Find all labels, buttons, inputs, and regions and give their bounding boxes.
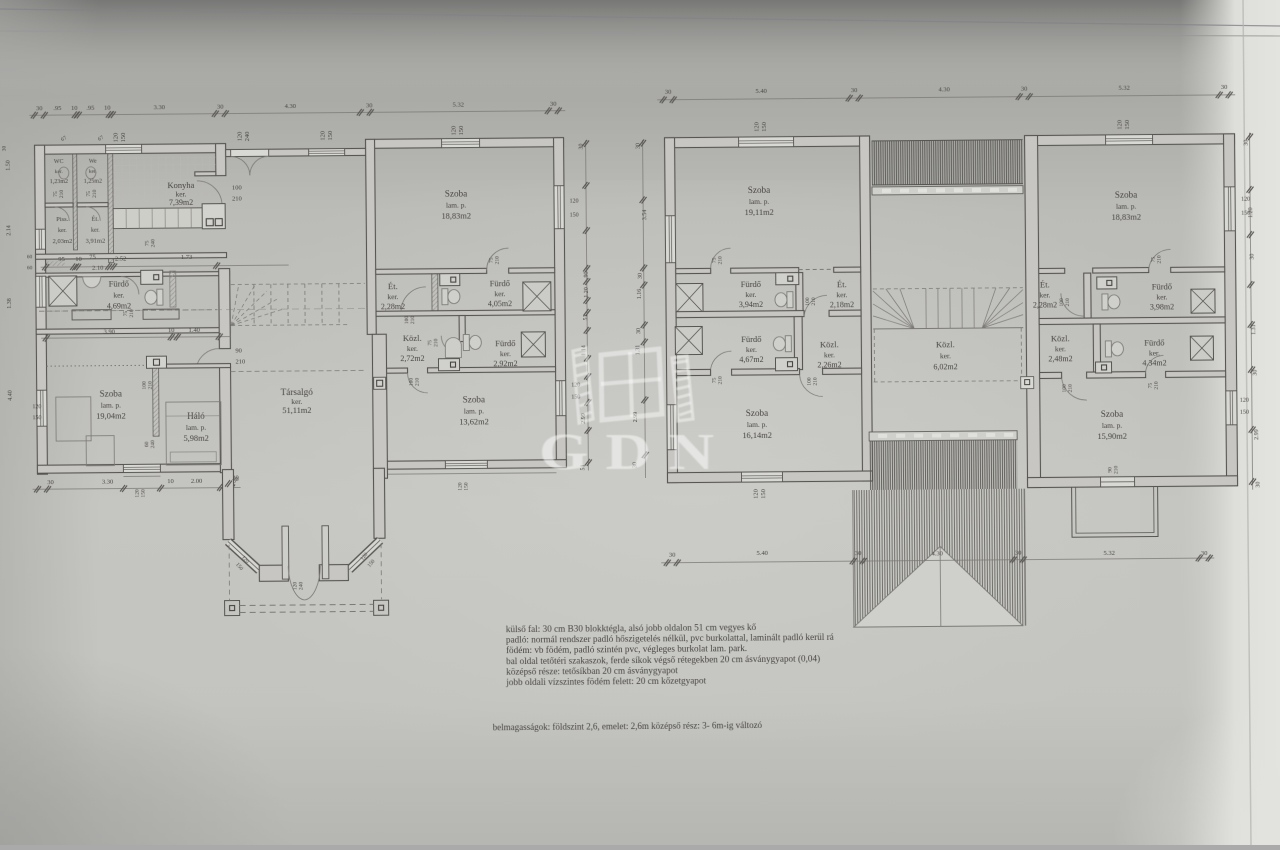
svg-text:lam. p.: lam. p.: [446, 201, 467, 210]
svg-text:2.14: 2.14: [6, 225, 12, 236]
svg-text:30: 30: [1244, 140, 1250, 146]
svg-text:3,91m2: 3,91m2: [86, 238, 106, 245]
svg-text:210: 210: [59, 190, 65, 199]
svg-text:Szoba: Szoba: [99, 389, 122, 399]
svg-text:120: 120: [32, 404, 41, 410]
svg-text:1.20: 1.20: [584, 287, 590, 298]
svg-text:Közl.: Közl.: [1051, 333, 1070, 343]
svg-text:210: 210: [235, 358, 245, 365]
svg-text:15,90m2: 15,90m2: [1097, 432, 1127, 441]
svg-text:240: 240: [298, 582, 304, 591]
svg-text:Fürdő: Fürdő: [1152, 281, 1172, 291]
svg-text:240: 240: [150, 239, 156, 248]
svg-text:150: 150: [761, 122, 768, 132]
svg-text:120: 120: [753, 122, 760, 132]
svg-text:10: 10: [71, 105, 78, 112]
svg-text:lam. p.: lam. p.: [1102, 421, 1123, 430]
svg-text:30: 30: [851, 87, 858, 94]
svg-text:120: 120: [570, 199, 579, 205]
svg-text:Piss.: Piss.: [56, 216, 69, 223]
svg-text:210: 210: [232, 195, 242, 202]
svg-text:60: 60: [27, 265, 33, 271]
svg-text:210: 210: [1154, 381, 1160, 390]
svg-text:150: 150: [327, 131, 334, 141]
svg-text:2,48m2: 2,48m2: [1048, 354, 1072, 363]
svg-text:30: 30: [1253, 370, 1259, 376]
svg-text:10: 10: [75, 256, 82, 263]
svg-text:ker.: ker.: [494, 289, 505, 298]
svg-text:10: 10: [167, 478, 174, 485]
svg-text:We: We: [89, 159, 97, 165]
svg-text:2,28m2: 2,28m2: [381, 302, 405, 311]
svg-text:ker.: ker.: [113, 290, 124, 299]
svg-text:Fürdő: Fürdő: [741, 334, 761, 344]
svg-text:30: 30: [1250, 254, 1256, 260]
svg-text:2,28m2: 2,28m2: [1033, 300, 1057, 309]
svg-text:120: 120: [1240, 398, 1249, 404]
svg-text:30: 30: [217, 104, 224, 111]
svg-text:30: 30: [366, 102, 373, 109]
svg-text:210: 210: [148, 381, 154, 390]
svg-text:51,11m2: 51,11m2: [282, 406, 311, 415]
svg-text:5.32: 5.32: [1103, 550, 1114, 557]
svg-text:3.30: 3.30: [102, 479, 113, 486]
svg-text:120: 120: [1241, 197, 1250, 203]
svg-text:2.99: 2.99: [1254, 429, 1260, 440]
svg-text:30: 30: [665, 89, 672, 96]
svg-text:Ét.: Ét.: [91, 215, 99, 223]
svg-text:120: 120: [753, 489, 760, 499]
svg-text:3.54: 3.54: [642, 210, 648, 221]
svg-text:2.52: 2.52: [115, 255, 126, 262]
svg-text:ker.: ker.: [500, 349, 511, 358]
svg-text:ker.: ker.: [89, 169, 98, 175]
svg-text:30: 30: [2, 146, 8, 152]
svg-text:210: 210: [495, 256, 501, 265]
svg-text:5.40: 5.40: [756, 550, 767, 557]
svg-text:ker.: ker.: [387, 292, 398, 301]
svg-text:16,14m2: 16,14m2: [742, 431, 772, 440]
svg-text:Fürdő: Fürdő: [495, 338, 515, 348]
svg-text:1.16: 1.16: [637, 289, 643, 300]
svg-text:4,34m2: 4,34m2: [1142, 358, 1166, 367]
svg-text:150: 150: [464, 482, 470, 491]
svg-text:Szoba: Szoba: [463, 394, 486, 404]
svg-text:30: 30: [636, 143, 642, 149]
svg-text:ker.: ker.: [824, 350, 835, 359]
svg-text:Szoba: Szoba: [748, 185, 771, 195]
svg-text:150: 150: [458, 126, 465, 136]
svg-text:Fürdő: Fürdő: [109, 278, 129, 288]
svg-text:150: 150: [32, 415, 41, 421]
svg-text:2,03m2: 2,03m2: [53, 238, 73, 245]
svg-text:18,83m2: 18,83m2: [441, 211, 471, 220]
svg-text:30: 30: [47, 479, 54, 486]
svg-text:4,67m2: 4,67m2: [739, 355, 763, 364]
svg-text:51: 51: [583, 314, 589, 320]
svg-text:30: 30: [636, 328, 642, 334]
svg-text:210: 210: [718, 376, 724, 385]
svg-text:30: 30: [1201, 550, 1208, 557]
svg-text:13,62m2: 13,62m2: [459, 417, 489, 426]
svg-text:ker.: ker.: [1039, 290, 1050, 299]
svg-text:ker.: ker.: [1055, 344, 1066, 353]
svg-text:210: 210: [1157, 255, 1163, 264]
svg-text:30: 30: [1221, 84, 1228, 91]
svg-text:4.40: 4.40: [8, 390, 14, 401]
svg-text:18,83m2: 18,83m2: [1111, 213, 1141, 222]
svg-text:210: 210: [410, 316, 416, 325]
svg-text:Szoba: Szoba: [445, 188, 468, 198]
svg-text:Szoba: Szoba: [746, 408, 769, 418]
svg-text:Fürdő: Fürdő: [741, 279, 761, 289]
svg-text:6,02m2: 6,02m2: [933, 362, 957, 371]
svg-text:30: 30: [1021, 86, 1028, 93]
svg-text:Ét.: Ét.: [837, 279, 847, 289]
svg-text:5.32: 5.32: [453, 102, 464, 109]
svg-text:90: 90: [235, 347, 242, 354]
svg-text:10: 10: [168, 327, 175, 334]
svg-text:jobb oldali vízszintes födém f: jobb oldali vízszintes födém felett: 20 …: [505, 675, 706, 687]
svg-text:30: 30: [638, 273, 644, 279]
svg-text:lam. p.: lam. p.: [186, 423, 207, 432]
svg-text:lam. p.: lam. p.: [749, 197, 770, 206]
svg-text:3,98m2: 3,98m2: [1150, 302, 1174, 311]
svg-text:150: 150: [1240, 410, 1249, 416]
svg-text:1.50: 1.50: [6, 160, 12, 171]
svg-text:150: 150: [760, 489, 767, 499]
svg-text:lam. p.: lam. p.: [464, 406, 485, 415]
svg-text:Közl.: Közl.: [820, 339, 839, 349]
svg-text:240: 240: [244, 132, 251, 142]
svg-text:Szoba: Szoba: [1101, 409, 1124, 419]
svg-text:210: 210: [1113, 465, 1119, 474]
svg-text:30: 30: [550, 101, 557, 108]
svg-text:1.31: 1.31: [1251, 324, 1257, 335]
svg-text:ker.: ker.: [745, 290, 756, 299]
svg-text:ker.: ker.: [836, 290, 847, 299]
svg-text:3.30: 3.30: [154, 104, 165, 111]
svg-text:5.32: 5.32: [1118, 85, 1129, 92]
svg-text:2,18m2: 2,18m2: [830, 300, 854, 309]
svg-text:7,39m2: 7,39m2: [169, 198, 193, 207]
svg-text:240: 240: [150, 440, 156, 449]
svg-text:19,11m2: 19,11m2: [745, 208, 774, 217]
svg-text:1.73: 1.73: [181, 254, 192, 261]
svg-text:150: 150: [1124, 120, 1131, 130]
svg-text:150: 150: [120, 133, 127, 143]
svg-text:30: 30: [855, 550, 862, 557]
svg-text:5,98m2: 5,98m2: [183, 434, 208, 443]
svg-text:120: 120: [450, 126, 457, 136]
svg-text:1.38: 1.38: [7, 298, 13, 309]
svg-text:3,94m2: 3,94m2: [739, 300, 763, 309]
svg-text:210: 210: [1068, 384, 1074, 393]
svg-text:3.90: 3.90: [103, 329, 114, 336]
svg-text:4.30: 4.30: [285, 103, 296, 110]
svg-text:60: 60: [27, 254, 33, 260]
svg-text:ker.: ker.: [746, 345, 757, 354]
svg-text:1,25m2: 1,25m2: [84, 179, 102, 185]
svg-text:Ét.: Ét.: [1040, 279, 1050, 289]
svg-text:120: 120: [319, 131, 326, 141]
svg-text:ker.: ker.: [291, 397, 302, 406]
svg-text:Ét.: Ét.: [388, 281, 398, 291]
svg-text:2.10: 2.10: [92, 265, 103, 272]
svg-text:90: 90: [584, 271, 590, 277]
svg-text:lam. p.: lam. p.: [1116, 202, 1137, 211]
svg-text:210: 210: [433, 338, 439, 347]
svg-text:1.40: 1.40: [188, 327, 199, 334]
svg-text:210: 210: [718, 256, 724, 265]
svg-text:150: 150: [141, 489, 147, 498]
svg-text:210: 210: [1065, 298, 1071, 307]
svg-text:30: 30: [1256, 482, 1262, 488]
svg-text:Fürdő: Fürdő: [1144, 337, 1164, 347]
svg-text:ker.: ker.: [58, 228, 67, 234]
svg-text:2,72m2: 2,72m2: [400, 354, 424, 363]
svg-text:19,04m2: 19,04m2: [96, 411, 126, 420]
svg-text:1,23m2: 1,23m2: [50, 179, 68, 185]
svg-text:100: 100: [232, 184, 242, 191]
svg-text:WC: WC: [54, 159, 64, 165]
svg-text:210: 210: [811, 297, 817, 306]
svg-text:30: 30: [1015, 550, 1022, 557]
svg-text:210: 210: [92, 189, 98, 198]
svg-text:120: 120: [112, 133, 119, 143]
svg-text:.95: .95: [86, 105, 94, 112]
svg-text:.95: .95: [53, 105, 61, 112]
svg-text:120: 120: [236, 132, 243, 142]
svg-text:középső része: tetősíkban 20 c: középső része: tetősíkban 20 cm ásványgy…: [506, 665, 678, 677]
svg-text:210: 210: [813, 377, 819, 386]
svg-text:120: 120: [1116, 120, 1123, 130]
svg-text:4,05m2: 4,05m2: [488, 299, 512, 308]
svg-text:Közl.: Közl.: [936, 339, 955, 349]
svg-text:30: 30: [669, 552, 676, 559]
svg-text:lam. p.: lam. p.: [747, 420, 768, 429]
svg-text:ker.: ker.: [940, 351, 951, 360]
svg-text:Társalgó: Társalgó: [281, 387, 314, 397]
svg-text:4.30: 4.30: [938, 86, 949, 93]
svg-text:210: 210: [415, 378, 421, 387]
svg-text:75: 75: [89, 254, 96, 261]
svg-text:2.00: 2.00: [191, 478, 202, 485]
svg-text:1.20: 1.20: [1248, 207, 1254, 218]
svg-text:30: 30: [36, 105, 43, 112]
svg-text:Közl.: Közl.: [403, 333, 422, 343]
svg-text:Szoba: Szoba: [1115, 190, 1138, 200]
svg-text:95: 95: [58, 256, 65, 263]
svg-text:GDN: GDN: [539, 422, 731, 480]
svg-text:Fürdő: Fürdő: [490, 278, 510, 288]
svg-text:150: 150: [570, 213, 579, 219]
svg-text:ker.: ker.: [1156, 292, 1167, 301]
svg-text:10: 10: [104, 105, 111, 112]
svg-text:lam. p.: lam. p.: [101, 401, 122, 410]
svg-text:ker.: ker.: [91, 228, 100, 234]
svg-text:ker.: ker.: [407, 344, 418, 353]
svg-text:4.30: 4.30: [931, 550, 942, 557]
svg-text:30: 30: [579, 143, 585, 149]
svg-text:5.40: 5.40: [755, 88, 766, 95]
